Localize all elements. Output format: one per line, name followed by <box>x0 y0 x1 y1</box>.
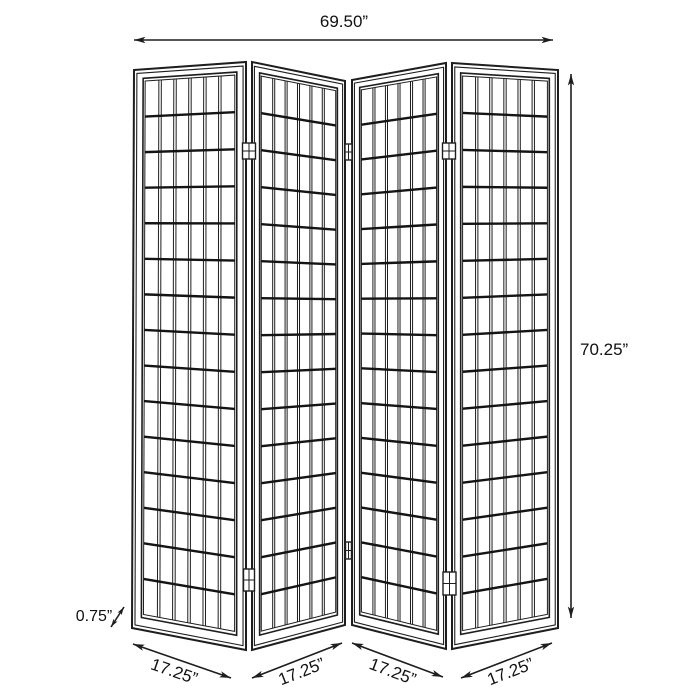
overall-width-dimension: 69.50” <box>134 12 553 40</box>
panel-thickness-label: 0.75” <box>76 608 112 625</box>
overall-width-label: 69.50” <box>320 12 369 31</box>
panel-thickness-dimension: 0.75” <box>76 607 124 627</box>
panel-2 <box>252 62 345 650</box>
panel1-width-label: 17.25” <box>148 655 200 689</box>
dimension-diagram: 69.50” 70.25” 0.75” 17.25” 17.25” 17.25”… <box>0 0 700 700</box>
panel-thickness-arrow <box>111 607 124 627</box>
panel3-width-label: 17.25” <box>367 654 419 689</box>
panel-width-annotations: 17.25” 17.25” 17.25” 17.25” <box>133 643 552 689</box>
panel-4 <box>452 63 558 649</box>
panel-1 <box>132 62 246 650</box>
room-divider-panels <box>132 62 558 650</box>
overall-height-label: 70.25” <box>580 340 629 359</box>
diagram-svg: 69.50” 70.25” 0.75” 17.25” 17.25” 17.25”… <box>0 0 700 700</box>
panel-3 <box>352 63 446 649</box>
overall-height-dimension: 70.25” <box>571 74 629 618</box>
